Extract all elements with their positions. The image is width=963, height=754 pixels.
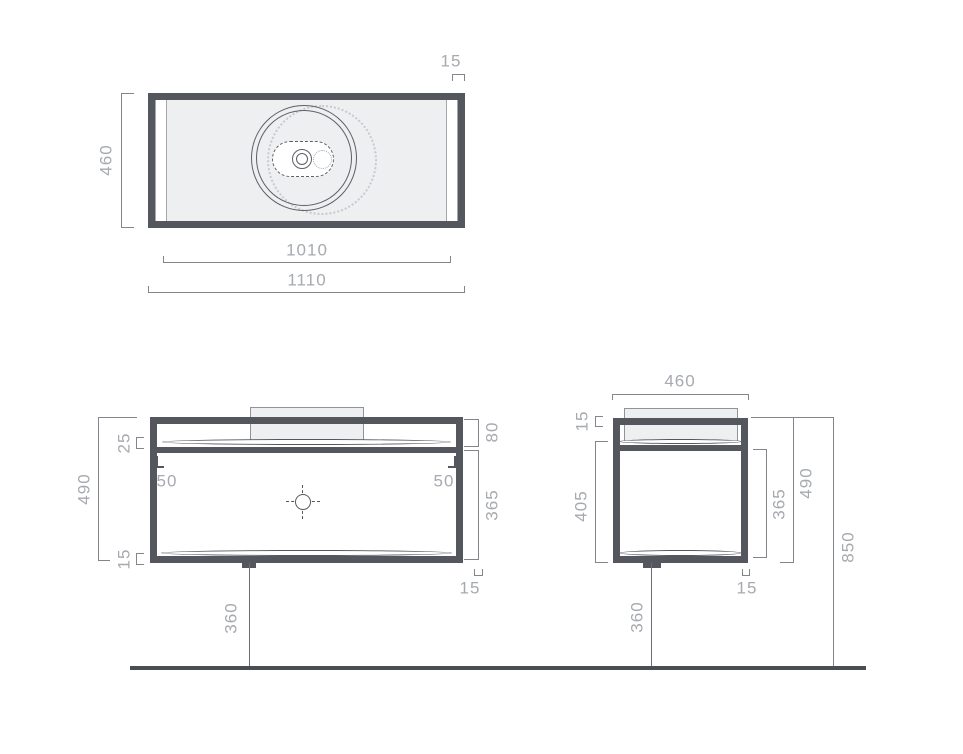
inset-mark-right bbox=[448, 456, 456, 468]
dim-line-front-height bbox=[98, 417, 99, 561]
dim-label-total-height: 850 bbox=[840, 531, 857, 562]
dim-line-front-drawer bbox=[478, 450, 479, 560]
dim-tick bbox=[748, 394, 749, 400]
dim-line-side-height bbox=[793, 417, 794, 563]
dim-label-side-drawer: 365 bbox=[771, 488, 788, 519]
bottom-shelf-plate-side bbox=[620, 550, 741, 556]
right-frame-profile bbox=[446, 100, 458, 221]
dim-tick bbox=[464, 559, 478, 560]
dim-label-inset-right: 50 bbox=[434, 473, 455, 490]
inset-mark-left bbox=[156, 456, 164, 468]
dim-label-front-drawer: 365 bbox=[484, 489, 501, 520]
dim-label-front-height: 490 bbox=[76, 473, 93, 504]
front-cross-rail bbox=[154, 447, 459, 453]
side-cross-rail bbox=[617, 445, 744, 451]
dim-bracket-top-frame bbox=[452, 74, 465, 81]
dim-label-side-frame: 15 bbox=[737, 580, 758, 597]
dim-bracket-side-top-frame bbox=[595, 416, 603, 427]
dim-tick bbox=[464, 419, 478, 420]
dim-bracket-side-frame bbox=[742, 569, 750, 576]
dim-line-outer-width bbox=[148, 292, 465, 293]
dim-label-front-side-frame: 15 bbox=[460, 580, 481, 597]
dim-label-inset-left: 50 bbox=[157, 473, 178, 490]
dim-tick bbox=[163, 256, 164, 262]
dim-label-side-top-frame: 15 bbox=[574, 411, 591, 432]
dim-label-side-depth: 460 bbox=[664, 373, 695, 390]
dim-line-side-depth bbox=[612, 394, 749, 395]
drain-pipe-front bbox=[249, 563, 250, 667]
dim-label-inner-width: 1010 bbox=[286, 242, 328, 259]
left-frame-profile bbox=[155, 100, 167, 221]
dim-tick bbox=[753, 449, 766, 450]
dim-line-side-drawer bbox=[766, 449, 767, 558]
dim-line-total-height bbox=[833, 417, 834, 667]
dim-label-top-depth: 460 bbox=[98, 144, 115, 175]
crosshair-circle bbox=[295, 494, 311, 510]
top-shelf-plate-side bbox=[619, 439, 742, 444]
dim-label-front-bottom-frame: 15 bbox=[116, 549, 133, 570]
dim-bracket-front-side-frame bbox=[474, 569, 483, 576]
top-shelf-plate-front bbox=[162, 439, 451, 445]
dim-bracket-front-gap bbox=[136, 437, 144, 449]
dim-label-front-drain: 360 bbox=[223, 602, 240, 633]
dim-tick bbox=[98, 417, 137, 418]
dim-tick bbox=[595, 562, 608, 563]
dim-tick bbox=[450, 256, 451, 262]
dim-tick bbox=[464, 446, 478, 447]
floor-line bbox=[130, 666, 866, 670]
dim-label-side-inner: 405 bbox=[573, 490, 590, 521]
dim-label-front-gap: 25 bbox=[116, 433, 133, 454]
dim-line-inner-width bbox=[163, 262, 451, 263]
dim-bracket-front-bottom-frame bbox=[136, 553, 144, 565]
dim-label-top-frame: 15 bbox=[441, 53, 462, 70]
drain-stub-side bbox=[643, 563, 661, 568]
bottom-shelf-plate-front bbox=[161, 550, 452, 556]
drain-pipe-side bbox=[651, 563, 652, 667]
dim-line-top-section bbox=[478, 419, 479, 447]
drain-inner-circle bbox=[296, 153, 308, 165]
dim-tick bbox=[464, 286, 465, 292]
dim-label-outer-width: 1110 bbox=[287, 272, 326, 289]
dim-label-side-drain: 360 bbox=[629, 601, 646, 632]
faucet-hole-dotted-circle bbox=[313, 150, 332, 169]
dim-tick bbox=[464, 450, 478, 451]
dim-tick bbox=[612, 394, 613, 400]
dim-label-top-section: 80 bbox=[484, 422, 501, 443]
dim-tick bbox=[98, 560, 110, 561]
technical-drawing-canvas: 460 15 1010 1110 50 50 490 bbox=[0, 0, 963, 754]
dim-line-top-depth bbox=[121, 93, 122, 228]
dim-tick bbox=[780, 562, 793, 563]
dim-tick bbox=[753, 557, 766, 558]
dim-tick bbox=[595, 441, 608, 442]
dim-line-side-inner bbox=[595, 441, 596, 563]
dim-tick bbox=[121, 227, 134, 228]
dim-label-side-height: 490 bbox=[798, 467, 815, 498]
dim-extension-top bbox=[751, 417, 833, 418]
dim-tick bbox=[148, 286, 149, 292]
dim-tick bbox=[121, 93, 134, 94]
